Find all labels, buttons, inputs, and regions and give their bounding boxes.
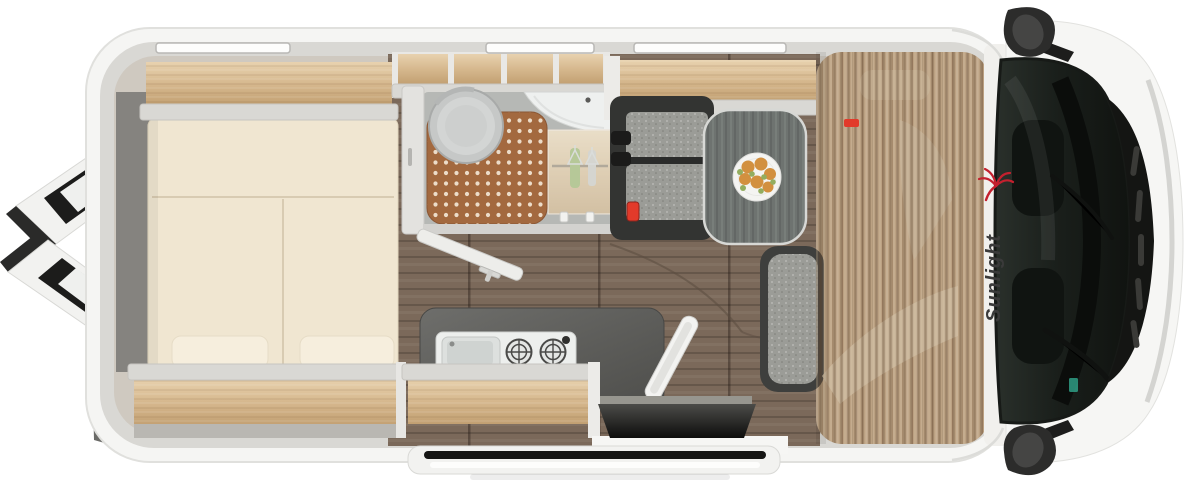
overhead-shelf-dinette-grain	[620, 60, 816, 102]
bed-side-gap-shadow	[116, 92, 150, 372]
fire-extinguisher	[627, 202, 639, 221]
cab-cover-stripes	[816, 52, 988, 444]
wardrobe-clip-left	[560, 212, 568, 222]
cab-cover-edge-shade	[816, 52, 826, 444]
sliding-door-shadow	[470, 474, 730, 480]
sliding-door-panel	[408, 446, 780, 474]
entry-step	[598, 404, 756, 438]
compartment-1	[398, 54, 448, 84]
wardrobe-clip-right	[586, 212, 594, 222]
shelf-end-wall	[588, 362, 600, 438]
sliding-door-window-strip	[424, 451, 766, 459]
bench-belt-mount-bottom	[611, 152, 631, 166]
swivel-seat-cushion	[768, 254, 818, 384]
bottom-shelf-kitchen-grain	[408, 378, 590, 424]
camper-van-floorplan: Sunlight	[0, 0, 1200, 481]
overhead-compartments	[392, 52, 610, 98]
sliding-door-open	[408, 446, 780, 480]
stove-burner-right	[541, 340, 566, 365]
windshield	[995, 59, 1130, 423]
bathroom-wall-bottom	[423, 224, 615, 234]
overhead-shelf-rear-grain	[146, 62, 392, 106]
sliding-door-trim	[430, 462, 760, 468]
bottom-shelf-kitchen-lip	[402, 364, 590, 380]
bed-pillow-left	[172, 336, 268, 368]
dinette	[604, 56, 818, 244]
windshield-sticker	[1069, 378, 1078, 392]
grape	[749, 171, 755, 177]
stove-burner-left	[507, 340, 532, 365]
roof-window-front	[634, 43, 786, 53]
grape	[740, 185, 746, 191]
compartment-3	[507, 54, 553, 84]
bottom-shelf-rear-grain	[134, 378, 400, 426]
overhead-shelf-rear-lip	[140, 104, 398, 120]
stove-knob	[562, 336, 570, 344]
kitchen-faucet	[450, 342, 455, 347]
rear-bed	[116, 62, 406, 438]
bathroom-cabinet	[402, 86, 424, 234]
roof-window-rear	[156, 43, 290, 53]
bathroom-cabinet-handle	[408, 148, 412, 166]
wardrobe-glass-door	[548, 130, 612, 214]
bottom-shelf-rear-lip	[128, 364, 404, 380]
cab-red-marker	[844, 119, 859, 127]
dinette-bench-backrest	[626, 112, 708, 158]
bed-mattress	[148, 118, 398, 370]
fruit	[755, 158, 768, 171]
grape	[770, 179, 776, 185]
grape	[761, 174, 767, 180]
grape	[758, 188, 764, 194]
compartment-4	[559, 54, 603, 84]
compartment-2	[454, 54, 501, 84]
cab-seat-silhouette-2	[1012, 268, 1064, 364]
threshold-trim	[600, 396, 752, 405]
grape	[737, 169, 743, 175]
toilet-lid-inner	[445, 105, 487, 147]
bed-pillow-right	[300, 336, 394, 368]
bottom-shelf-rear-base	[134, 424, 400, 438]
dinette-bench-gap	[626, 157, 708, 164]
sink-drain	[585, 97, 590, 102]
roof-window-middle	[486, 43, 594, 53]
fruit-plate	[733, 153, 781, 201]
mattress-edge-shade	[148, 118, 158, 370]
bench-belt-mount-top	[611, 131, 631, 145]
logo-text: Sunlight	[983, 234, 1005, 322]
